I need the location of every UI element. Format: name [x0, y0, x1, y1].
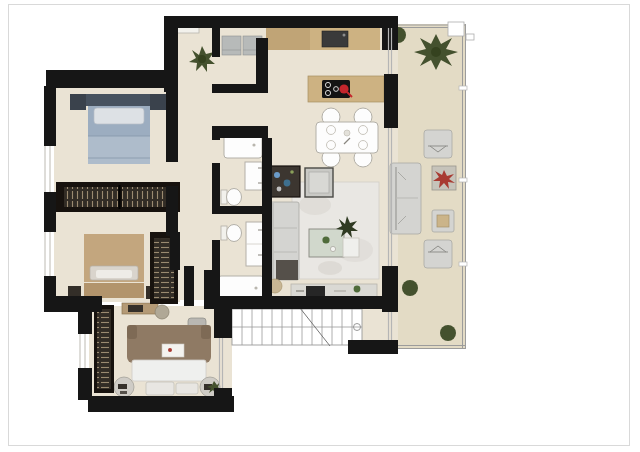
round-side-table-left	[114, 377, 134, 397]
floor-plan-page	[0, 0, 640, 452]
wall-bath2-left-block	[204, 270, 218, 300]
wall-bottomleft-band	[44, 296, 102, 312]
rug-marbling	[299, 195, 331, 215]
wall-right-pillar-mid	[384, 74, 398, 128]
nightstand	[70, 94, 86, 110]
window-bedroom1	[42, 146, 54, 192]
duvet	[132, 360, 206, 381]
stairs	[232, 308, 362, 346]
wall-bed2-divider	[170, 232, 180, 270]
runner-decor	[168, 348, 172, 352]
center-bowl	[344, 130, 350, 136]
wall-hall-divider-a	[166, 88, 178, 162]
planter-red	[432, 166, 456, 190]
kitchen-island	[308, 76, 384, 102]
wall-right-pillar-low	[382, 266, 398, 312]
bed-runner	[162, 344, 184, 357]
lounge-chair	[305, 168, 333, 197]
nightstand	[150, 94, 166, 110]
faucet	[343, 34, 346, 37]
wall-bed3-left-b	[78, 368, 92, 400]
table-decor	[322, 236, 329, 243]
railing-bracket	[459, 86, 467, 90]
foot-cushion	[176, 383, 198, 394]
stair-landing-floor	[362, 309, 398, 342]
foot-bench	[146, 382, 174, 395]
wall-stairs-bottom	[348, 340, 398, 354]
tv-console	[291, 284, 377, 297]
drain	[254, 286, 257, 289]
rug-marbling	[318, 261, 342, 275]
kitchen-sink	[322, 31, 348, 47]
railing-corner-post	[448, 22, 464, 36]
wall-right-pillar-top	[382, 16, 398, 50]
wall-laundry-right	[256, 38, 268, 93]
wall-bed3-bottom	[88, 396, 234, 412]
wall-laundry-left	[212, 27, 220, 57]
coffee-table	[309, 229, 344, 257]
stool	[155, 305, 169, 319]
outdoor-sofa	[390, 163, 421, 234]
washbasin	[245, 162, 262, 190]
wall-corridor-v	[184, 266, 194, 306]
bar-cabinet	[268, 166, 300, 197]
wall-bed3-left-a	[78, 308, 92, 334]
console-plant	[354, 286, 361, 293]
pillows-top	[96, 270, 132, 278]
sofa-throw	[276, 260, 298, 280]
wardrobe-bed1-bed2	[56, 182, 180, 212]
toilet	[221, 189, 242, 206]
outdoor-table	[432, 210, 454, 232]
wall-bedroom1-top	[46, 70, 176, 88]
bush-plant	[440, 325, 456, 341]
wall-bath-left-a	[212, 126, 220, 140]
wall-bed3-right-b	[214, 388, 232, 412]
wall-bath1-top	[212, 126, 268, 138]
headboard	[84, 283, 144, 298]
wall-bath-divider	[212, 206, 268, 214]
wall-bed3-right-a	[214, 304, 232, 338]
side-table	[343, 238, 359, 257]
bush-plant	[402, 280, 418, 296]
pillows	[94, 108, 144, 124]
counter-left	[266, 28, 310, 50]
wardrobe-bed3	[94, 305, 114, 393]
vanity-items	[128, 305, 143, 312]
railing-bracket	[459, 178, 467, 182]
wall-laundry-bottom	[212, 84, 262, 93]
wall-top	[164, 16, 398, 28]
floor-plan-drawing	[0, 0, 640, 452]
outdoor-armchair-bottom	[424, 240, 452, 268]
wall-hall-divider-b	[166, 186, 178, 236]
toilet	[221, 225, 242, 242]
outdoor-armchair-top	[424, 130, 452, 158]
wall-bath-left-b	[212, 163, 220, 213]
window-bedroom3	[77, 334, 89, 368]
tv	[306, 286, 325, 296]
washer	[222, 36, 241, 55]
bed-throw	[88, 136, 150, 164]
drain	[252, 143, 255, 146]
window-bedroom2	[42, 232, 54, 276]
dining-table	[316, 122, 378, 153]
wall-left-a	[44, 86, 56, 146]
railing-bracket	[466, 34, 474, 40]
wall-bath-right	[262, 138, 272, 298]
wall-living-bottom	[204, 296, 398, 309]
wall-left-b	[44, 192, 56, 232]
railing-bracket	[459, 262, 467, 266]
